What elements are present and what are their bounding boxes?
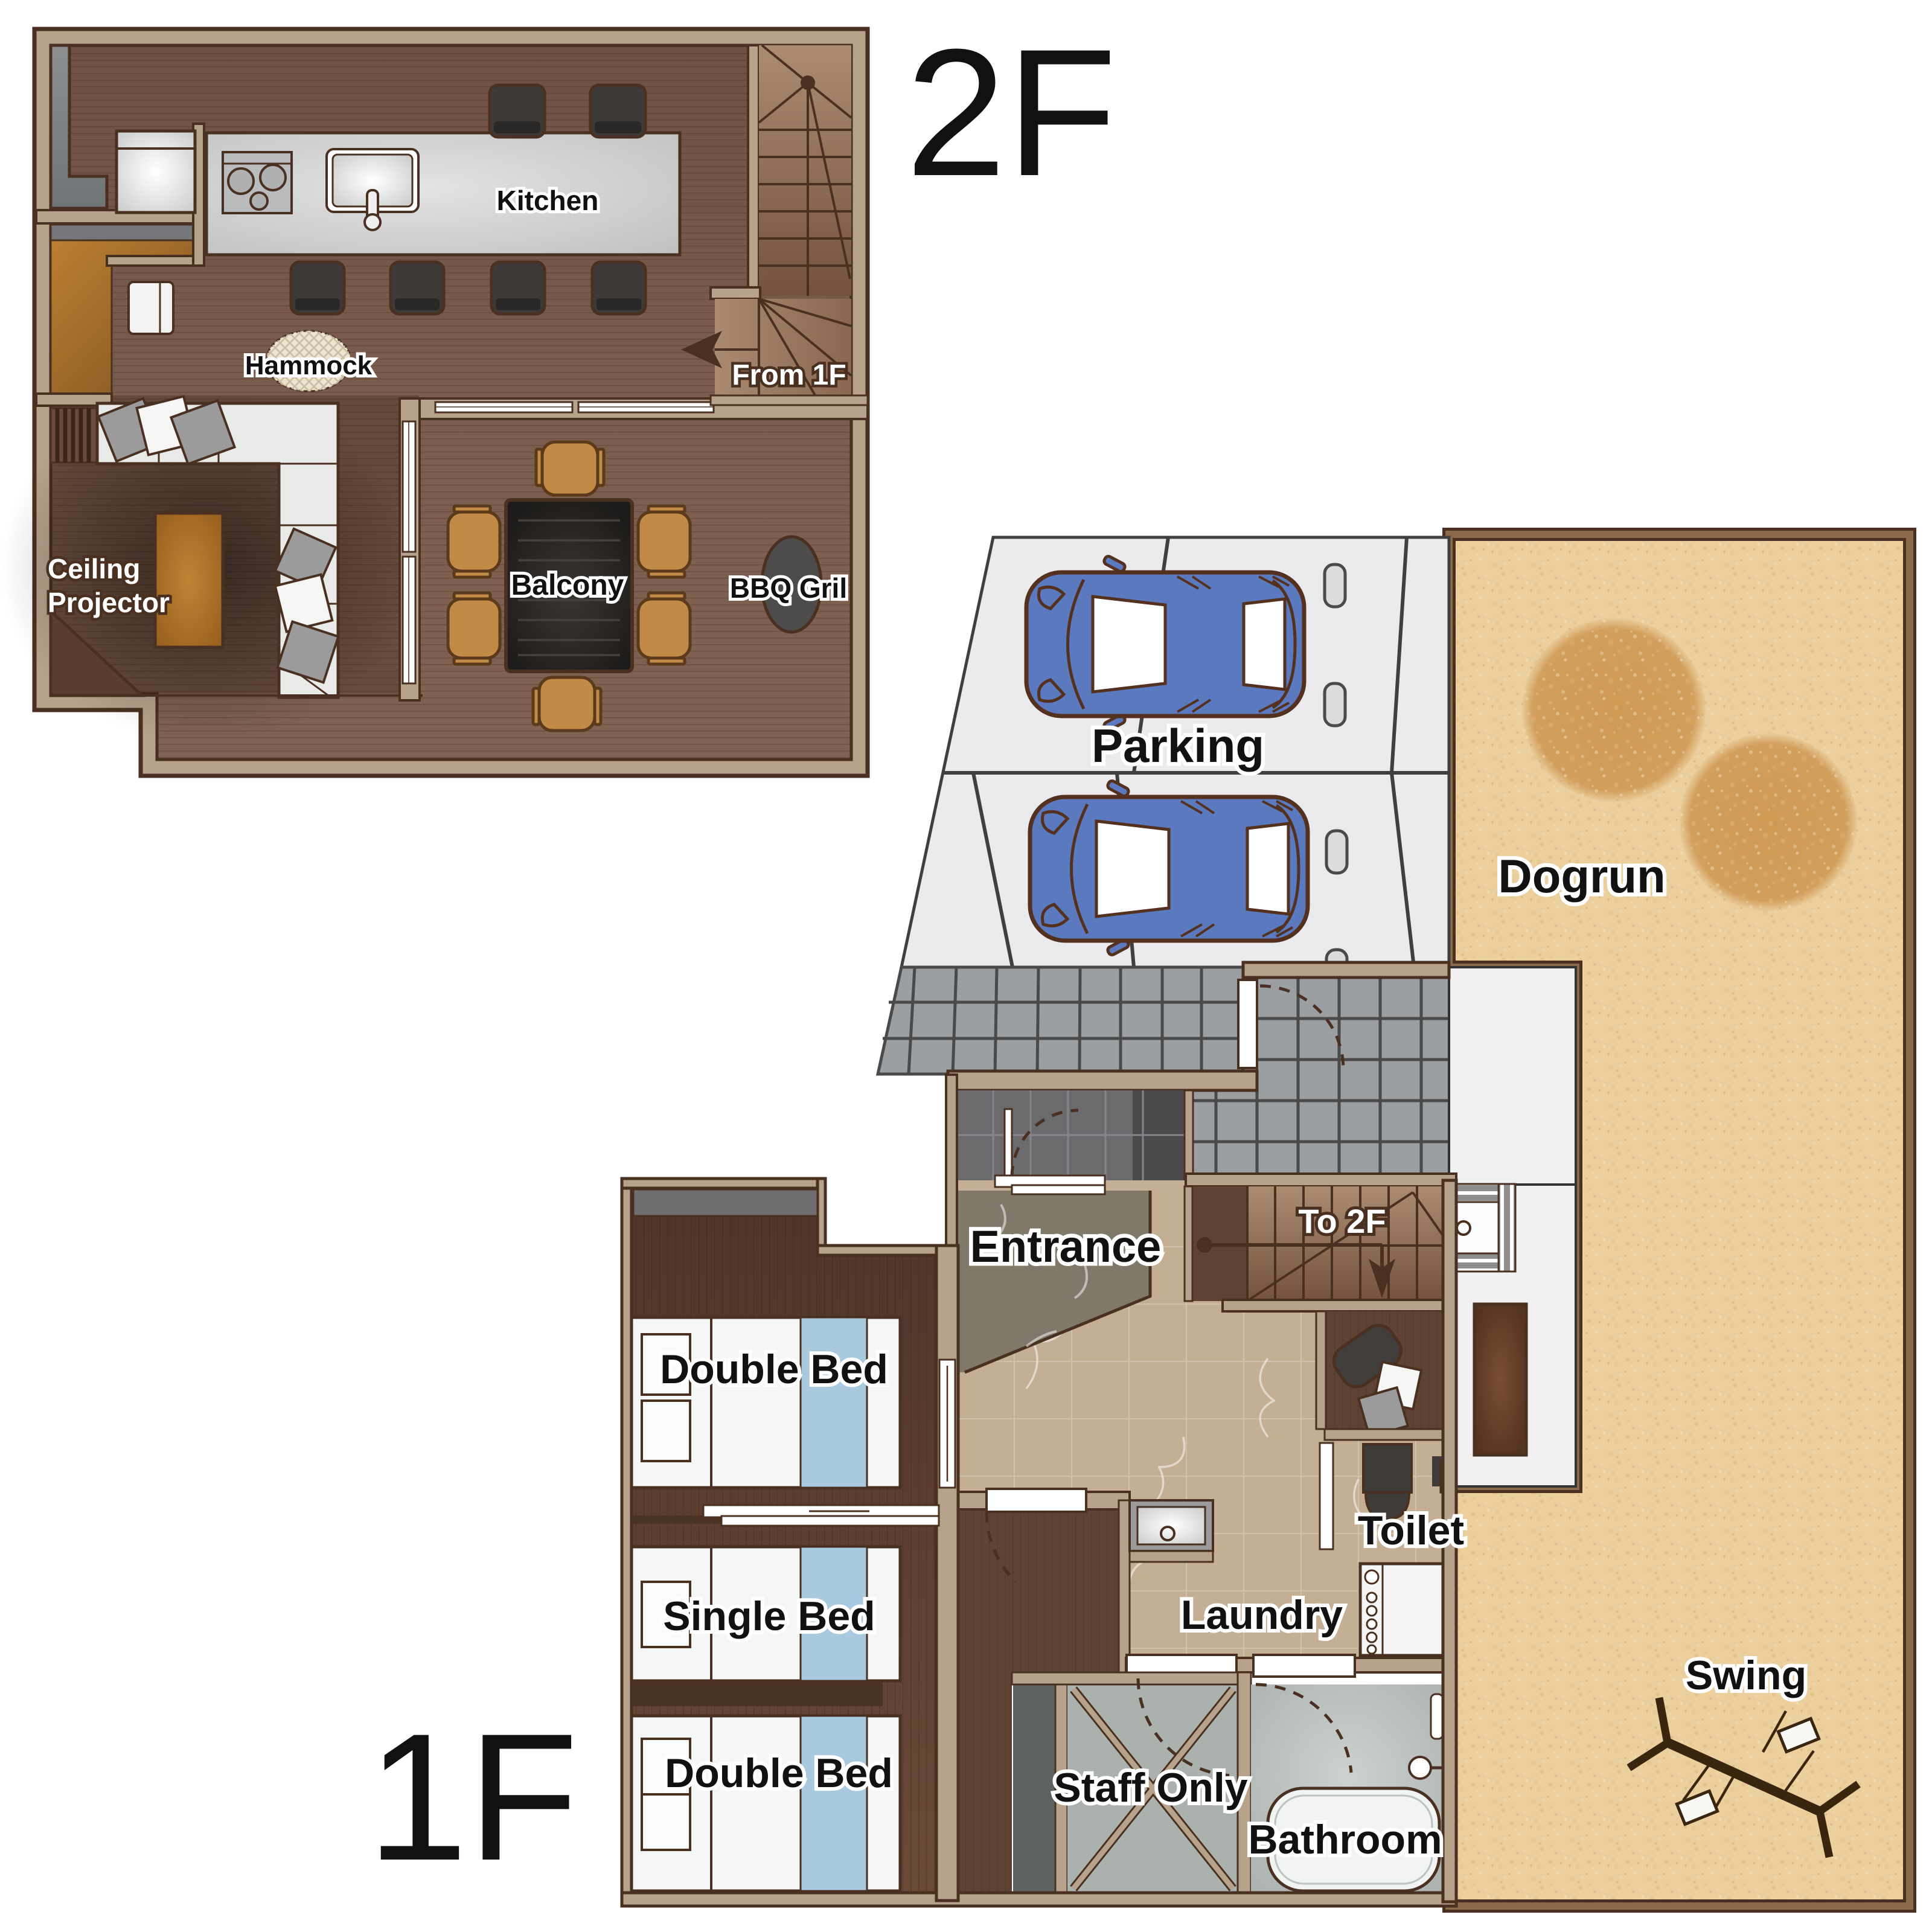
svg-text:Kitchen: Kitchen <box>497 185 599 216</box>
svg-text:Ceiling: Ceiling <box>48 553 140 584</box>
svg-text:From 1F: From 1F <box>732 359 846 391</box>
svg-text:Swing: Swing <box>1686 1652 1806 1698</box>
svg-text:Laundry: Laundry <box>1181 1592 1343 1638</box>
svg-text:Single Bed: Single Bed <box>663 1593 875 1639</box>
svg-text:Entrance: Entrance <box>970 1221 1162 1271</box>
svg-text:Projector: Projector <box>48 587 170 618</box>
svg-text:To 2F: To 2F <box>1298 1202 1386 1240</box>
svg-text:BBQ Gril: BBQ Gril <box>730 572 847 604</box>
svg-text:2F: 2F <box>906 11 1117 214</box>
svg-text:Balcony: Balcony <box>511 569 624 601</box>
svg-text:Bathroom: Bathroom <box>1248 1817 1442 1863</box>
svg-text:Parking: Parking <box>1092 719 1264 772</box>
svg-text:Double Bed: Double Bed <box>660 1346 888 1392</box>
svg-text:Toilet: Toilet <box>1358 1508 1464 1553</box>
svg-text:Hammock: Hammock <box>245 351 373 380</box>
svg-text:Double Bed: Double Bed <box>665 1750 893 1796</box>
svg-text:Dogrun: Dogrun <box>1498 849 1665 903</box>
svg-text:1F: 1F <box>367 1695 578 1898</box>
svg-text:Staff Only: Staff Only <box>1054 1765 1247 1811</box>
